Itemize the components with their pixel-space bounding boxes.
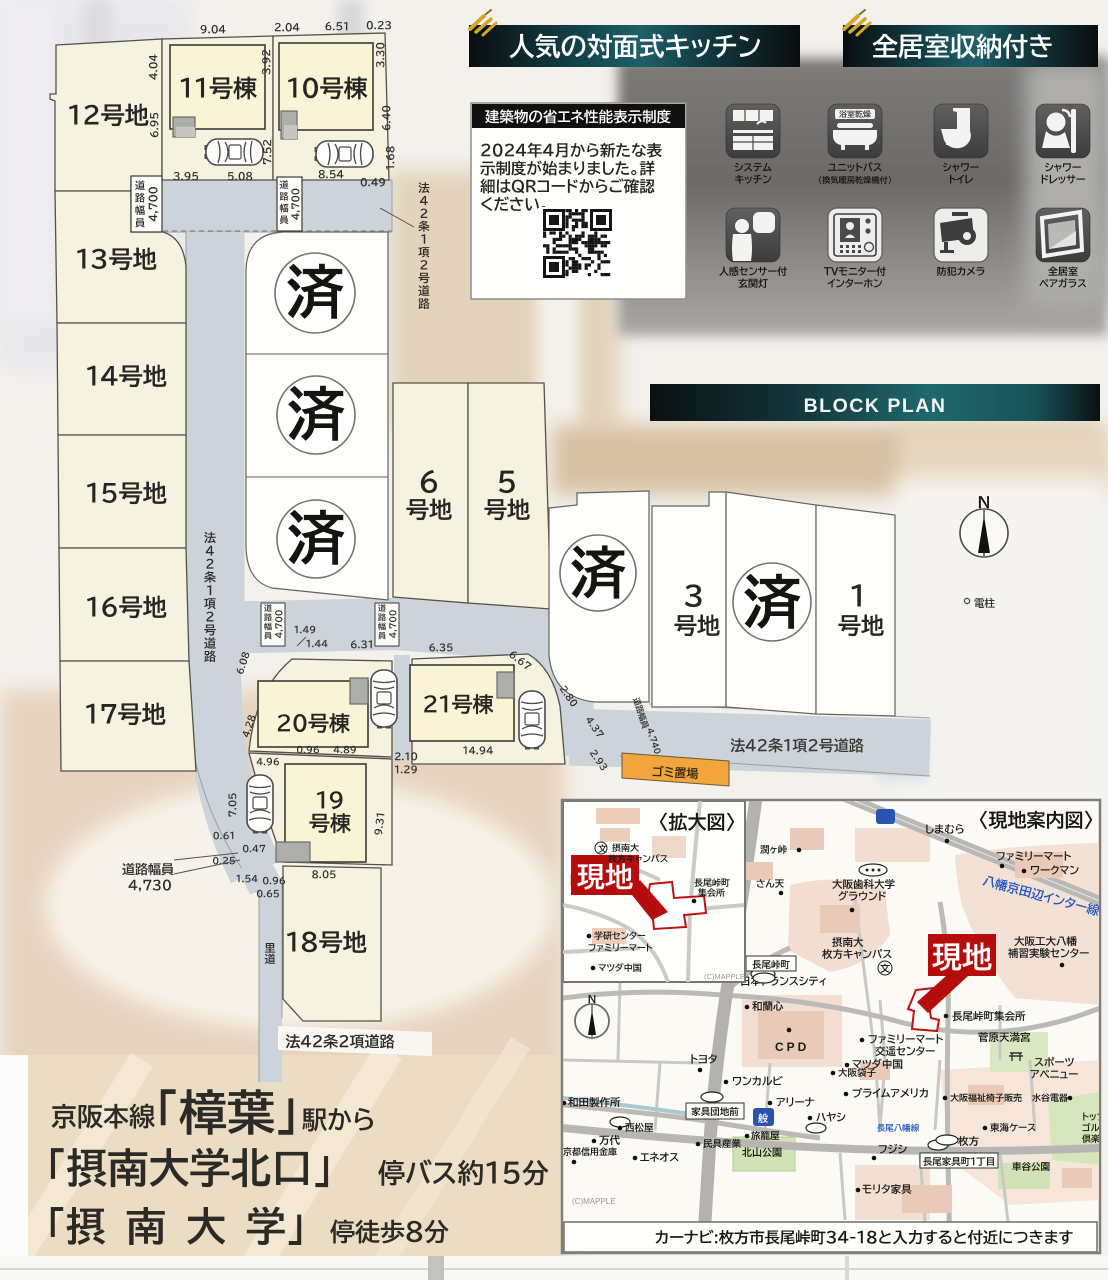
svg-text:(C)MAPPLE: (C)MAPPLE: [572, 1197, 616, 1206]
svg-text:(C)MAPPLE: (C)MAPPLE: [704, 972, 745, 981]
svg-text:CPD: CPD: [775, 1040, 809, 1054]
svg-text:BLOCK PLAN: BLOCK PLAN: [804, 395, 947, 417]
